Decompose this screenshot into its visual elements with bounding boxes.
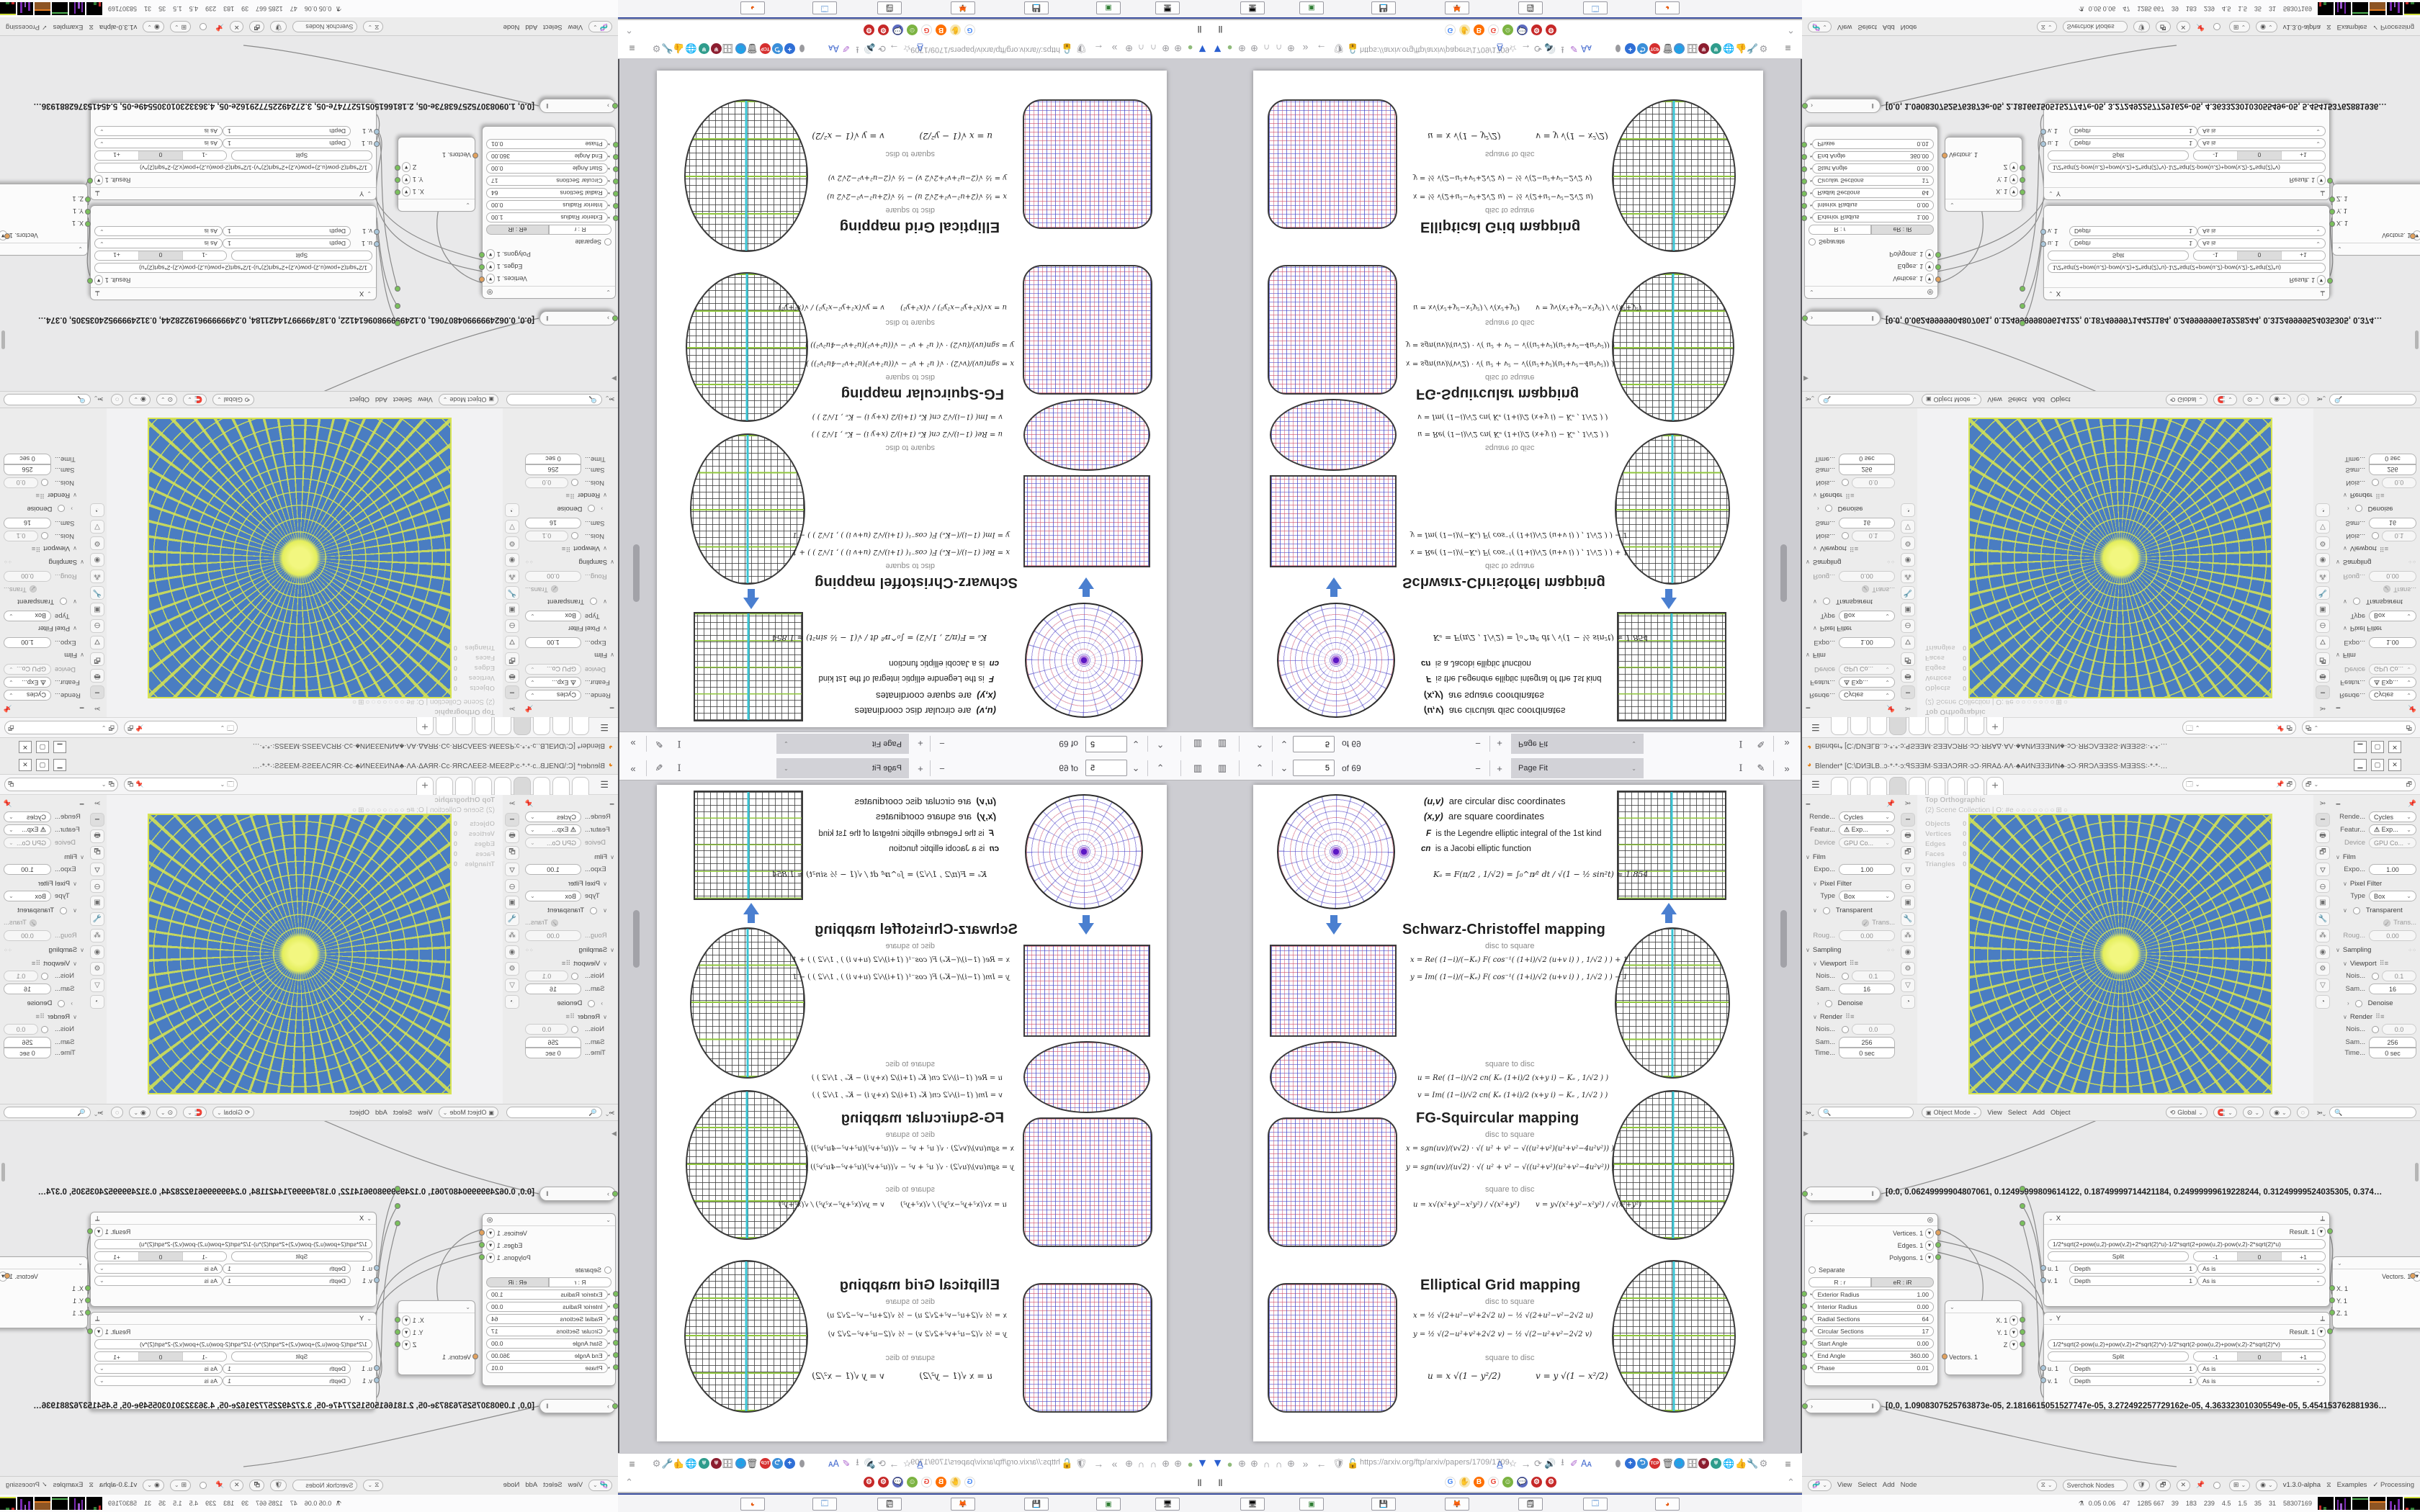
- object-tab-icon[interactable]: ▣: [505, 603, 519, 616]
- constraints-tab-icon[interactable]: ⚙: [1901, 536, 1915, 550]
- archive-icon[interactable]: 🗄: [1686, 1457, 1698, 1471]
- shield-teal-icon[interactable]: ⛨: [699, 43, 709, 54]
- pdf-scrollbar[interactable]: [633, 544, 640, 602]
- zoom-out-icon[interactable]: −: [935, 760, 949, 776]
- render-tab-icon[interactable]: 🗕: [90, 813, 104, 827]
- transparent-checkbox[interactable]: [1823, 598, 1830, 606]
- shield-red-icon[interactable]: ⛨: [1698, 43, 1709, 54]
- pixel-filter-section[interactable]: ∨Pixel Filter: [2343, 879, 2416, 888]
- workspace-tab-4-active[interactable]: [514, 777, 531, 795]
- pixel-filter-section[interactable]: ∨Pixel Filter: [525, 879, 607, 888]
- er-mode-button[interactable]: eR : iR: [486, 225, 549, 235]
- offset-segment[interactable]: -10+1: [2193, 1251, 2326, 1261]
- examples-menu[interactable]: Examples: [53, 23, 84, 31]
- tcp-red-icon[interactable]: TCP: [1649, 43, 1660, 54]
- reload-icon[interactable]: ⟳: [1532, 41, 1544, 55]
- viewport-3d[interactable]: Top Orthographic (2) Scene Collection | …: [107, 408, 503, 717]
- pin-icon[interactable]: 📌: [525, 704, 534, 712]
- workspace-tab-6[interactable]: [475, 777, 492, 795]
- separate-checkbox[interactable]: [604, 1266, 611, 1274]
- samples-viewport-field[interactable]: 16: [1839, 984, 1895, 994]
- editor-type-icon[interactable]: 🧬⌄: [1808, 1480, 1832, 1491]
- material-tab-icon[interactable]: ◔: [90, 503, 104, 517]
- noise-toggle[interactable]: [2372, 973, 2379, 980]
- noise-viewport-field[interactable]: 0.1: [525, 531, 568, 541]
- viewlayer-tab-icon[interactable]: 🗗: [90, 846, 104, 860]
- noise-render-field[interactable]: 0.0: [2382, 477, 2416, 488]
- taskbar-console-green[interactable]: ▣: [1096, 1498, 1121, 1511]
- overflow-chevrons-icon[interactable]: »: [1108, 41, 1121, 55]
- headset-icon-1[interactable]: ∩: [1260, 41, 1273, 55]
- object-menu[interactable]: Object: [350, 1109, 369, 1117]
- stethoscope-node-1[interactable]: ›‖: [539, 1187, 616, 1201]
- next-page-icon[interactable]: ⌄: [1128, 760, 1144, 776]
- draw-icon[interactable]: ✎: [1753, 760, 1769, 776]
- page-number-input[interactable]: [1085, 760, 1127, 776]
- url-text[interactable]: https://arxiv.org/ftp/arxiv/papers/1709/…: [1360, 45, 1512, 54]
- smiley-icon[interactable]: ☺: [907, 1477, 918, 1488]
- material-tab-icon[interactable]: ◔: [2316, 995, 2330, 1009]
- node-tree-name[interactable]: Sverchok Nodes: [292, 1480, 357, 1491]
- thumbs-up-icon[interactable]: 👍: [1735, 41, 1747, 55]
- gear-red-icon-1[interactable]: ⚙: [878, 1477, 889, 1488]
- reload-icon[interactable]: ⟳: [876, 1457, 888, 1471]
- samples-viewport-field[interactable]: 16: [4, 518, 51, 528]
- minimize-button[interactable]: ▁: [53, 741, 66, 753]
- viewport-3d[interactable]: Top Orthographic (2) Scene Collection | …: [1917, 795, 2313, 1104]
- noise-toggle[interactable]: [571, 533, 578, 540]
- view-menu[interactable]: View: [1837, 1481, 1852, 1489]
- film-section[interactable]: ∨Film: [4, 650, 84, 660]
- globe-color-icon[interactable]: 🌐: [1674, 1458, 1685, 1469]
- separate-checkbox[interactable]: [1809, 1266, 1816, 1274]
- next-page-icon[interactable]: ⌄: [1128, 736, 1144, 752]
- y-expression-node[interactable]: ⌄Y⟂ Result. 1 ▾ 1/2*sqrt(2-pow(u,2)+pow(…: [90, 102, 377, 200]
- taskbar-window-app[interactable]: 🗔: [1583, 1, 1608, 14]
- globe-icon-1[interactable]: ⊕: [1172, 1457, 1184, 1471]
- denoise-section[interactable]: ›Denoise: [4, 999, 73, 1008]
- speaker-icon[interactable]: 🔊: [864, 1457, 876, 1471]
- viewport-3d[interactable]: Top Orthographic (2) Scene Collection | …: [1917, 408, 2313, 717]
- bookmark-star-icon[interactable]: ☆: [1507, 41, 1519, 55]
- object-tab-icon[interactable]: ▣: [2316, 603, 2330, 616]
- stethoscope-node-1[interactable]: ›‖: [1804, 311, 1881, 325]
- stethoscope-node-2[interactable]: ›‖: [539, 1399, 616, 1413]
- data-tab-icon[interactable]: ▽: [505, 520, 519, 534]
- shield-button[interactable]: 🛡: [2133, 1480, 2150, 1491]
- denoise-checkbox[interactable]: [58, 505, 65, 513]
- material-tab-icon[interactable]: ◔: [90, 995, 104, 1009]
- fake-user-toggle[interactable]: [200, 24, 207, 31]
- pin-icon[interactable]: 📌: [1886, 800, 1895, 808]
- noise-viewport-field[interactable]: 0.1: [525, 971, 568, 981]
- transform-orientation-dropdown[interactable]: ⟲Global⌄: [212, 1107, 254, 1118]
- v-logo-icon[interactable]: ▼: [1196, 41, 1209, 55]
- overflow-chevrons-icon[interactable]: »: [1108, 1457, 1121, 1471]
- node-menu[interactable]: Node: [1901, 23, 1917, 31]
- device-dropdown[interactable]: GPU Co...⌄: [1839, 837, 1895, 848]
- examples-menu[interactable]: Examples: [53, 1481, 84, 1489]
- film-section[interactable]: ∨Film: [2336, 650, 2416, 660]
- google2-icon[interactable]: G: [1488, 1477, 1499, 1488]
- vector-in-node[interactable]: ⌄ Vectors. 1 ▾ X. 1 Y. 1 Z. 1: [2332, 184, 2420, 256]
- film-section[interactable]: ∨Film: [1806, 852, 1895, 862]
- translate-picker-icon[interactable]: 🗛: [828, 41, 840, 55]
- collapse-caret-icon[interactable]: ⌃: [623, 1475, 635, 1490]
- physics-tab-icon[interactable]: ◉: [2316, 945, 2330, 959]
- pdf-content-area[interactable]: (u,v) are circular disc coordinates (x,y…: [619, 780, 1210, 1453]
- gear-icon[interactable]: ⚙: [1757, 1457, 1770, 1471]
- add-menu[interactable]: Add: [1883, 23, 1895, 31]
- shield-button[interactable]: 🛡: [270, 1480, 287, 1491]
- render-tab-icon[interactable]: 🗕: [505, 685, 519, 699]
- viewlayer-tab-icon[interactable]: 🗗: [1901, 652, 1915, 666]
- shield-red-icon[interactable]: ⛨: [711, 1458, 722, 1469]
- rough-field[interactable]: 0.00: [4, 930, 51, 941]
- snap-toggle[interactable]: 🧲⌄: [183, 394, 207, 405]
- pin-icon[interactable]: 📌: [4, 704, 12, 712]
- previous-page-icon[interactable]: ⌃: [1152, 760, 1168, 776]
- examples-menu[interactable]: Examples: [2337, 1481, 2367, 1489]
- zoom-mode-dropdown[interactable]: Page Fit⌄: [1511, 758, 1644, 778]
- sidebar-toggle-icon[interactable]: ▥: [1190, 736, 1206, 752]
- constraints-tab-icon[interactable]: ⚙: [90, 962, 104, 976]
- chat-icon[interactable]: 💬: [1517, 24, 1528, 35]
- download-icon[interactable]: ⭳: [851, 1457, 864, 1471]
- sverchok-node-editor[interactable]: ▶ ›‖ [0.0, 0.06249999904807061, 0.124999…: [0, 1121, 618, 1476]
- device-dropdown[interactable]: GPU Co...⌄: [525, 837, 581, 848]
- rough-field[interactable]: 0.00: [525, 571, 581, 582]
- bookmark-star-icon[interactable]: ☆: [901, 41, 913, 55]
- x-expression-node[interactable]: ⌄X⟂ Result. 1 ▾ 1/2*sqrt(2+pow(u,2)-pow(…: [2043, 205, 2330, 300]
- split-button[interactable]: Split: [2048, 251, 2189, 261]
- pin-icon[interactable]: 📌: [2196, 1481, 2205, 1489]
- filter-icon[interactable]: ⭃⌄: [94, 396, 103, 404]
- x-expression-node[interactable]: ⌄X⟂ Result. 1 ▾ 1/2*sqrt(2+pow(u,2)-pow(…: [2043, 1212, 2330, 1307]
- add-blue-icon[interactable]: +: [1625, 1458, 1636, 1469]
- formula-field[interactable]: 1/2*sqrt(2-pow(u,2)+pow(v,2)+2*sqrt(2)*v…: [2048, 1339, 2326, 1349]
- pdf-scrollbar[interactable]: [633, 910, 640, 968]
- workspace-tab-6[interactable]: [1928, 717, 1945, 735]
- forward-arrow-icon[interactable]: →: [1520, 41, 1532, 55]
- device-dropdown[interactable]: GPU Co...⌄: [4, 837, 51, 848]
- time-field[interactable]: 0 sec: [525, 1048, 581, 1058]
- workspace-add-tab[interactable]: +: [416, 777, 434, 795]
- filter-tab-icon[interactable]: ⭃: [505, 702, 519, 716]
- tree-type-icon[interactable]: ⧖⌄: [363, 22, 383, 33]
- modifier-tab-icon[interactable]: 🔧: [505, 912, 519, 926]
- workspace-tab-2[interactable]: [552, 717, 570, 735]
- sampling-section[interactable]: ∨Sampling⁘⁘: [2336, 557, 2416, 567]
- output-tab-icon[interactable]: 🖶: [505, 829, 519, 843]
- data-tab-icon[interactable]: ▽: [2316, 520, 2330, 534]
- exposure-field[interactable]: 1.00: [1839, 864, 1895, 875]
- previous-page-icon[interactable]: ⌃: [1252, 760, 1268, 776]
- maximize-button[interactable]: ▢: [36, 741, 49, 753]
- fake-user-toggle[interactable]: [2213, 1482, 2220, 1489]
- shading-toggle[interactable]: ◌: [2297, 1107, 2309, 1118]
- noise-viewport-field[interactable]: 0.1: [4, 971, 38, 981]
- time-field[interactable]: 0 sec: [525, 454, 581, 464]
- pixel-filter-section[interactable]: ∨Pixel Filter: [525, 624, 607, 633]
- scene-tab-icon[interactable]: 🜄: [90, 863, 104, 876]
- node-editor-scrollbar[interactable]: [1, 1163, 5, 1182]
- object-tab-icon[interactable]: ▣: [1901, 896, 1915, 909]
- workspace-tab-5[interactable]: [1909, 717, 1926, 735]
- workspace-tab-5[interactable]: [494, 717, 511, 735]
- add-blue-icon[interactable]: +: [1625, 43, 1636, 54]
- noise-render-field[interactable]: 0.0: [4, 1024, 38, 1035]
- formula-field[interactable]: 1/2*sqrt(2-pow(u,2)+pow(v,2)+2*sqrt(2)*v…: [94, 1339, 372, 1349]
- workspace-tab-4-active[interactable]: [1889, 777, 1906, 795]
- world-tab-icon[interactable]: 🜔: [1901, 879, 1915, 893]
- processing-checkbox[interactable]: ✓ Processing: [6, 1481, 48, 1489]
- green-globe-icon[interactable]: ●: [1184, 41, 1196, 55]
- viewport-section[interactable]: ∨Viewport⠿≡: [2343, 959, 2416, 968]
- sverchok-node-editor[interactable]: ▶ ›‖ [0.0, 0.06249999904807061, 0.124999…: [0, 36, 618, 391]
- highlighter-icon[interactable]: ✐: [840, 41, 852, 55]
- data-tab-icon[interactable]: ▽: [2316, 978, 2330, 992]
- viewport-section[interactable]: ∨Viewport⠿≡: [4, 959, 77, 968]
- workspace-tab-8[interactable]: [1967, 717, 1984, 735]
- shield-teal-icon[interactable]: ⛨: [1711, 43, 1721, 54]
- taskbar-screenshot-tool[interactable]: 🖥: [1240, 1, 1265, 14]
- transparent-checkbox[interactable]: [2353, 907, 2360, 914]
- chat-icon[interactable]: 💬: [892, 1477, 903, 1488]
- taskbar-notepad[interactable]: 🗒: [1518, 1, 1543, 14]
- particles-tab-icon[interactable]: ⁂: [2316, 570, 2330, 583]
- time-field[interactable]: 0 sec: [2369, 1048, 2416, 1058]
- gear-icon[interactable]: ⚙: [650, 41, 663, 55]
- type-dropdown[interactable]: Box⌄: [1839, 611, 1895, 621]
- wrench-icon[interactable]: 🔧: [661, 41, 673, 55]
- output-tab-icon[interactable]: 🖶: [505, 669, 519, 683]
- denoise-checkbox[interactable]: [588, 505, 595, 513]
- time-field[interactable]: 0 sec: [2369, 454, 2416, 464]
- collapse-caret-icon[interactable]: ⌃: [1785, 1475, 1797, 1490]
- type-dropdown[interactable]: Box⌄: [4, 891, 51, 901]
- workspace-tab-2[interactable]: [1850, 717, 1868, 735]
- exposure-field[interactable]: 1.00: [2369, 637, 2416, 648]
- offset-segment[interactable]: -10+1: [2193, 251, 2326, 261]
- reload-icon[interactable]: ⟳: [876, 41, 888, 55]
- next-page-icon[interactable]: ⌄: [1276, 736, 1292, 752]
- pin-icon[interactable]: 📌: [2408, 704, 2416, 712]
- viewlayer-selector[interactable]: 🗗⌄🗗: [4, 721, 118, 734]
- zoom-mode-dropdown[interactable]: Page Fit⌄: [1511, 734, 1644, 754]
- samples-render-field[interactable]: 256: [1839, 464, 1895, 475]
- feature-dropdown[interactable]: ⚠ Exp...⌄: [2369, 677, 2416, 688]
- noise-toggle[interactable]: [1842, 533, 1849, 540]
- translate-picker-icon[interactable]: 🗛: [1580, 41, 1592, 55]
- shield-icon[interactable]: 🛡: [1332, 1457, 1345, 1471]
- viewport-section[interactable]: ∨Viewport⠿≡: [4, 544, 77, 553]
- menu-hamburger-icon[interactable]: ≡: [1782, 41, 1794, 55]
- gear-red-icon-2[interactable]: ⚙: [1546, 1477, 1556, 1488]
- v-logo-icon[interactable]: ▼: [1211, 41, 1224, 55]
- node-editor-scrollbar[interactable]: [2415, 1163, 2419, 1182]
- add-menu[interactable]: Add: [2033, 396, 2045, 404]
- workspace-tab-4-active[interactable]: [514, 717, 531, 735]
- exposure-field[interactable]: 1.00: [2369, 864, 2416, 875]
- viewlayer-tab-icon[interactable]: 🗗: [505, 652, 519, 666]
- pixel-filter-section[interactable]: ∨Pixel Filter: [4, 624, 77, 633]
- trans-checkbox[interactable]: ✓: [30, 586, 37, 593]
- tcp-red-icon[interactable]: TCP: [760, 1458, 771, 1469]
- noise-render-field[interactable]: 0.0: [2382, 1024, 2416, 1035]
- workspace-tab-7[interactable]: [1948, 777, 1965, 795]
- sidebar-toggle-icon[interactable]: ▥: [1214, 736, 1230, 752]
- noise-toggle[interactable]: [571, 973, 578, 980]
- render-section[interactable]: ∨Render⠿≡: [1813, 1012, 1895, 1022]
- pause-icon[interactable]: ‖: [1214, 1475, 1227, 1490]
- rough-field[interactable]: 0.00: [1839, 930, 1895, 941]
- snap-toggle[interactable]: 🧲⌄: [183, 1107, 207, 1118]
- data-tab-icon[interactable]: ▽: [505, 978, 519, 992]
- gear-icon[interactable]: ⚙: [650, 1457, 663, 1471]
- constraints-tab-icon[interactable]: ⚙: [90, 536, 104, 550]
- workspace-tab-3[interactable]: [1870, 777, 1887, 795]
- output-tab-icon[interactable]: 🖶: [2316, 829, 2330, 843]
- feature-dropdown[interactable]: ⚠ Exp...⌄: [4, 677, 51, 688]
- taskbar-blender[interactable]: ◕: [740, 1498, 765, 1511]
- render-tab-icon[interactable]: 🗕: [1901, 813, 1915, 827]
- noise-render-toggle[interactable]: [571, 480, 578, 487]
- split-button[interactable]: Split: [231, 1251, 372, 1261]
- archive-icon[interactable]: 🗄: [722, 41, 734, 55]
- y-expression-node[interactable]: ⌄Y⟂ Result. 1 ▾ 1/2*sqrt(2-pow(u,2)+pow(…: [2043, 102, 2330, 200]
- back-arrow-icon[interactable]: ←: [1315, 41, 1327, 55]
- circle-node[interactable]: ⌄◎ Vertices. 1 ▾ Edges. 1 ▾ Polygons. 1 …: [482, 126, 616, 299]
- render-section[interactable]: ∨Render⠿≡: [2343, 490, 2416, 500]
- transparent-section[interactable]: ∨Transparent: [2343, 906, 2416, 915]
- time-field[interactable]: 0 sec: [1839, 454, 1895, 464]
- data-tab-icon[interactable]: ▽: [90, 520, 104, 534]
- physics-tab-icon[interactable]: ◉: [505, 945, 519, 959]
- viewlayer-selector[interactable]: 🗗⌄🗗: [2302, 721, 2416, 734]
- pin-icon[interactable]: 📌: [1886, 704, 1895, 712]
- scene-selector[interactable]: 🗔⌄📌🗗: [124, 778, 238, 791]
- trash-icon[interactable]: 🗑: [746, 1457, 758, 1471]
- globe-icon-1[interactable]: ⊕: [1236, 1457, 1248, 1471]
- mouse-icon[interactable]: ⬮: [1612, 1457, 1624, 1471]
- transparent-section[interactable]: ∨Transparent: [1813, 906, 1895, 915]
- globe-gray-icon[interactable]: 🌐: [685, 1457, 697, 1471]
- taskbar-floppy-64[interactable]: 💾: [1371, 1, 1396, 14]
- minimize-button[interactable]: ▁: [2354, 759, 2367, 771]
- properties-search-input[interactable]: 🔍: [4, 394, 91, 405]
- split-button[interactable]: Split: [2048, 1251, 2189, 1261]
- taskbar-floppy-64[interactable]: 💾: [1024, 1498, 1049, 1511]
- snap-widget[interactable]: ⊞⌄: [2229, 1480, 2250, 1491]
- offset-segment[interactable]: -10+1: [94, 1251, 227, 1261]
- mode-dropdown[interactable]: ▣Object Mode⌄: [439, 1107, 498, 1118]
- trash-icon[interactable]: 🗑: [746, 41, 758, 55]
- type-dropdown[interactable]: Box⌄: [2369, 891, 2416, 901]
- speaker-icon[interactable]: 🔊: [1544, 1457, 1556, 1471]
- pin-icon[interactable]: 📌: [215, 23, 224, 31]
- gear-icon[interactable]: ⚙: [1757, 41, 1770, 55]
- feature-dropdown[interactable]: ⚠ Exp...⌄: [525, 824, 581, 835]
- next-page-icon[interactable]: ⌄: [1276, 760, 1292, 776]
- object-tab-icon[interactable]: ▣: [1901, 603, 1915, 616]
- select-menu[interactable]: Select: [543, 23, 562, 31]
- transform-orientation-dropdown[interactable]: ⟲Global⌄: [2166, 394, 2208, 405]
- transparent-checkbox[interactable]: [60, 598, 67, 606]
- samples-viewport-field[interactable]: 16: [525, 518, 581, 528]
- noise-render-toggle[interactable]: [2372, 1026, 2379, 1033]
- render-tab-icon[interactable]: 🗕: [505, 813, 519, 827]
- formula-field[interactable]: 1/2*sqrt(2-pow(u,2)+pow(v,2)+2*sqrt(2)*v…: [2048, 163, 2326, 174]
- editor-type-icon[interactable]: 🧬⌄: [588, 22, 612, 33]
- viewport-section[interactable]: ∨Viewport⠿≡: [1813, 544, 1895, 553]
- film-section[interactable]: ∨Film: [2336, 852, 2416, 862]
- split-button[interactable]: Split: [2048, 1351, 2189, 1362]
- highlighter-icon[interactable]: ✐: [1568, 1457, 1580, 1471]
- output-tab-icon[interactable]: 🖶: [90, 829, 104, 843]
- add-menu[interactable]: Add: [2033, 1109, 2045, 1117]
- overlays-toggle[interactable]: ◉⌄: [129, 394, 151, 405]
- pin-icon[interactable]: 📌: [2196, 23, 2205, 31]
- transparent-checkbox[interactable]: [1823, 907, 1830, 914]
- physics-tab-icon[interactable]: ◉: [1901, 553, 1915, 567]
- select-menu[interactable]: Select: [543, 1481, 562, 1489]
- noise-viewport-field[interactable]: 0.1: [4, 531, 38, 541]
- workspace-tab-3[interactable]: [533, 717, 550, 735]
- view-menu[interactable]: View: [568, 1481, 583, 1489]
- samples-render-field[interactable]: 256: [4, 1037, 51, 1048]
- shading-toggle[interactable]: ◌: [111, 1107, 123, 1118]
- workspace-tab-2[interactable]: [1850, 777, 1868, 795]
- denoise-section[interactable]: ›Denoise: [1817, 504, 1895, 513]
- globe-color-icon[interactable]: 🌐: [735, 43, 746, 54]
- unlink-button[interactable]: ✕: [230, 22, 244, 33]
- device-dropdown[interactable]: GPU Co...⌄: [2369, 664, 2416, 675]
- mouse-icon[interactable]: ⬮: [796, 1457, 808, 1471]
- trans-checkbox[interactable]: ✓: [1862, 919, 1869, 927]
- globe-icon-1[interactable]: ⊕: [1236, 41, 1248, 55]
- trans-checkbox[interactable]: ✓: [551, 919, 558, 927]
- workspace-tab-3[interactable]: [533, 777, 550, 795]
- taskbar-firefox[interactable]: 🦊: [951, 1498, 975, 1511]
- sidebar-arrow-icon[interactable]: ▶: [611, 374, 617, 382]
- node-menu[interactable]: Node: [1901, 1481, 1917, 1489]
- copy-button[interactable]: 🗗: [2156, 22, 2170, 33]
- menu-hamburger-icon[interactable]: ≡: [626, 41, 638, 55]
- engine-dropdown[interactable]: Cycles⌄: [1839, 690, 1895, 701]
- transparent-section[interactable]: ∨Transparent: [525, 906, 607, 915]
- shield-button[interactable]: 🛡: [2133, 22, 2150, 33]
- taskbar-console-green[interactable]: ▣: [1096, 1, 1121, 14]
- sidebar-arrow-icon[interactable]: ▶: [611, 1130, 617, 1138]
- transparent-checkbox[interactable]: [590, 907, 597, 914]
- headset-icon-2[interactable]: ∩: [1135, 41, 1147, 55]
- offset-segment[interactable]: -10+1: [94, 251, 227, 261]
- exposure-field[interactable]: 1.00: [4, 864, 51, 875]
- feature-dropdown[interactable]: ⚠ Exp...⌄: [4, 824, 51, 835]
- globe-icon-2[interactable]: ⊕: [1160, 1457, 1172, 1471]
- gear-red-icon-1[interactable]: ⚙: [1531, 1477, 1542, 1488]
- material-tab-icon[interactable]: ◔: [1901, 503, 1915, 517]
- gear-red-icon-1[interactable]: ⚙: [1531, 24, 1542, 35]
- return-blue-icon[interactable]: ⮌: [1637, 43, 1648, 54]
- archive-icon[interactable]: 🗄: [722, 1457, 734, 1471]
- download-icon[interactable]: ⭳: [1556, 1457, 1569, 1471]
- pixel-filter-section[interactable]: ∨Pixel Filter: [1813, 624, 1895, 633]
- thumbs-up-icon[interactable]: 👍: [673, 1457, 685, 1471]
- tools-expand-icon[interactable]: »: [624, 760, 642, 776]
- render-tab-icon[interactable]: 🗕: [2316, 685, 2330, 699]
